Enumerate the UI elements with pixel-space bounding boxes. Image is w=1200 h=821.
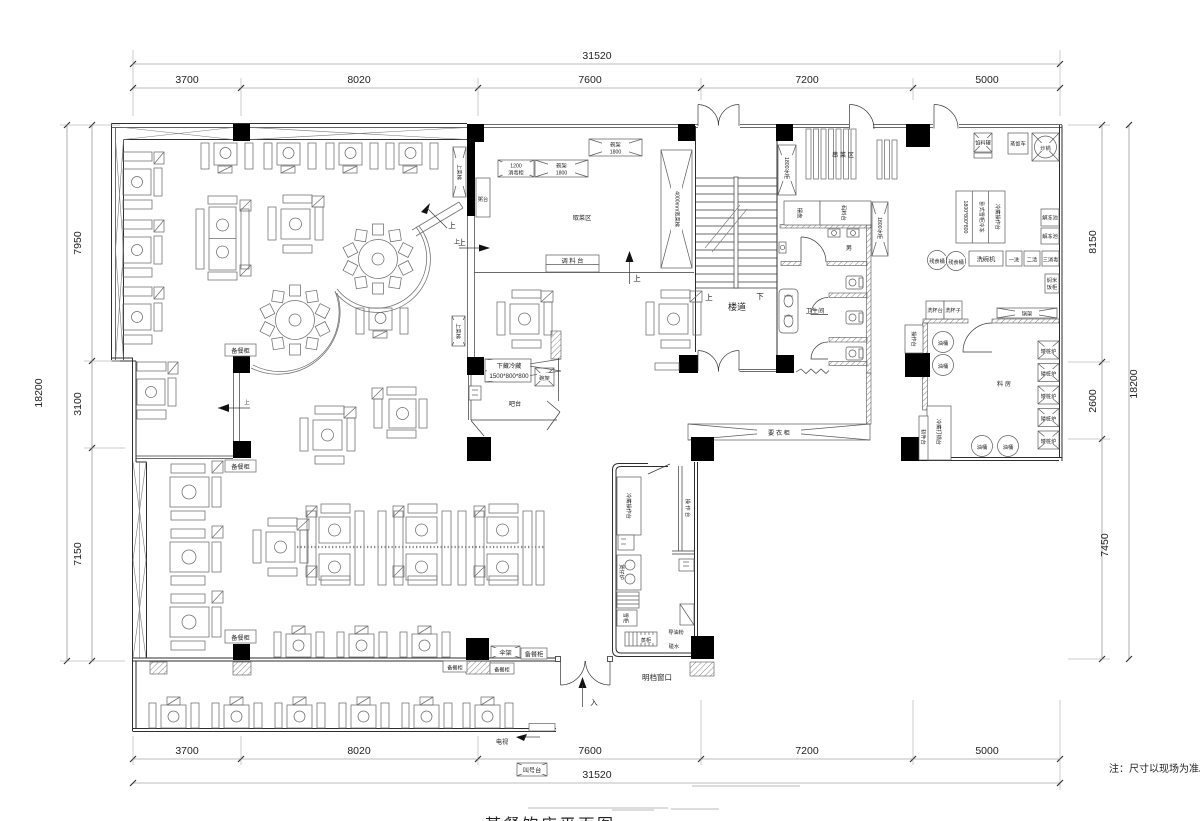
svg-text:油桶: 油桶 bbox=[938, 362, 948, 370]
svg-text:矮桩炉: 矮桩炉 bbox=[1041, 437, 1057, 445]
svg-text:碗架: 碗架 bbox=[556, 162, 566, 170]
svg-text:备餐柜: 备餐柜 bbox=[231, 347, 250, 355]
svg-text:7200: 7200 bbox=[795, 745, 819, 757]
svg-text:洗杯子: 洗杯子 bbox=[945, 306, 961, 314]
svg-text:某餐饮店平面图: 某餐饮店平面图 bbox=[485, 816, 613, 821]
svg-text:碗架: 碗架 bbox=[610, 141, 620, 149]
svg-text:残食桶: 残食桶 bbox=[929, 257, 945, 265]
svg-text:8020: 8020 bbox=[347, 745, 371, 757]
svg-text:上: 上 bbox=[244, 398, 249, 406]
svg-text:一洗: 一洗 bbox=[1009, 256, 1020, 264]
svg-text:备餐柜: 备餐柜 bbox=[494, 666, 510, 674]
svg-text:焖米: 焖米 bbox=[1047, 276, 1058, 284]
svg-text:2600: 2600 bbox=[1087, 389, 1099, 413]
svg-text:上菜梯: 上菜梯 bbox=[455, 323, 463, 339]
svg-text:1200: 1200 bbox=[510, 164, 522, 170]
svg-text:洗杯台: 洗杯台 bbox=[927, 306, 943, 314]
svg-text:8150: 8150 bbox=[1087, 230, 1099, 254]
svg-text:电视: 电视 bbox=[496, 738, 508, 746]
svg-text:31520: 31520 bbox=[582, 769, 611, 781]
svg-text:残食桶: 残食桶 bbox=[948, 258, 964, 266]
svg-text:取菜区: 取菜区 bbox=[573, 214, 592, 222]
svg-text:斩件台: 斩件台 bbox=[920, 429, 928, 445]
svg-text:7150: 7150 bbox=[72, 542, 84, 566]
svg-text:煲仔炉: 煲仔炉 bbox=[618, 564, 626, 580]
svg-text:7600: 7600 bbox=[578, 74, 602, 86]
svg-text:操 作 台: 操 作 台 bbox=[684, 499, 692, 517]
svg-text:炒锅: 炒锅 bbox=[1040, 144, 1050, 152]
svg-text:下藏冷藏: 下藏冷藏 bbox=[497, 362, 522, 370]
svg-text:雪柜: 雪柜 bbox=[622, 613, 630, 623]
svg-text:饭柜: 饭柜 bbox=[1047, 283, 1057, 291]
svg-text:三消毒: 三消毒 bbox=[1043, 256, 1059, 264]
svg-text:男: 男 bbox=[846, 245, 852, 252]
svg-text:消毒柜: 消毒柜 bbox=[508, 169, 524, 177]
svg-text:18200: 18200 bbox=[33, 378, 45, 407]
svg-text:串 菜 区: 串 菜 区 bbox=[832, 151, 854, 159]
svg-text:7600: 7600 bbox=[578, 745, 602, 757]
svg-text:导油粉: 导油粉 bbox=[668, 628, 684, 636]
svg-text:锅架: 锅架 bbox=[1022, 310, 1032, 318]
svg-text:料 房: 料 房 bbox=[997, 380, 1011, 388]
svg-text:调 料 台: 调 料 台 bbox=[561, 257, 583, 265]
svg-text:备餐柜: 备餐柜 bbox=[231, 463, 250, 471]
svg-text:上菜梯: 上菜梯 bbox=[456, 164, 464, 180]
svg-text:1800冰柜: 1800冰柜 bbox=[876, 217, 884, 239]
svg-text:1800*800*800: 1800*800*800 bbox=[962, 201, 968, 234]
svg-text:叫号台: 叫号台 bbox=[523, 767, 542, 775]
svg-text:油桶: 油桶 bbox=[977, 443, 987, 451]
svg-text:冷藏打锅台: 冷藏打锅台 bbox=[935, 419, 943, 445]
svg-text:洗碗机: 洗碗机 bbox=[977, 256, 996, 264]
svg-text:31520: 31520 bbox=[582, 50, 611, 62]
svg-text:碰水: 碰水 bbox=[669, 642, 680, 650]
svg-text:1500*800*800: 1500*800*800 bbox=[489, 373, 529, 380]
svg-text:上: 上 bbox=[705, 293, 713, 302]
svg-text:伞架: 伞架 bbox=[499, 649, 511, 657]
svg-text:注：尺寸以现场为准。: 注：尺寸以现场为准。 bbox=[1109, 762, 1200, 775]
svg-text:18200: 18200 bbox=[1128, 369, 1140, 398]
svg-text:矮桩炉: 矮桩炉 bbox=[1041, 392, 1057, 400]
svg-text:1800: 1800 bbox=[610, 150, 622, 156]
svg-text:7450: 7450 bbox=[1099, 533, 1111, 557]
svg-text:5000: 5000 bbox=[975, 745, 999, 757]
svg-text:3700: 3700 bbox=[175, 74, 199, 86]
svg-text:矮桩炉: 矮桩炉 bbox=[1041, 370, 1057, 378]
svg-text:要 衣 柜: 要 衣 柜 bbox=[768, 429, 790, 437]
svg-text:冷藏操作台: 冷藏操作台 bbox=[994, 204, 1002, 230]
svg-text:楼道: 楼道 bbox=[728, 301, 746, 312]
svg-text:1800冰柜: 1800冰柜 bbox=[783, 157, 791, 179]
svg-text:卫生间: 卫生间 bbox=[806, 307, 825, 315]
svg-text:7950: 7950 bbox=[72, 231, 84, 255]
svg-text:解冻池: 解冻池 bbox=[1042, 214, 1058, 222]
svg-text:二清: 二清 bbox=[1027, 256, 1037, 264]
svg-text:吧台: 吧台 bbox=[509, 400, 521, 408]
svg-text:冷藏操作台: 冷藏操作台 bbox=[625, 493, 633, 519]
svg-text:蒸柜: 蒸柜 bbox=[641, 636, 651, 644]
svg-text:上: 上 bbox=[633, 274, 641, 283]
svg-text:上: 上 bbox=[448, 221, 456, 230]
svg-text:备餐柜: 备餐柜 bbox=[231, 634, 250, 642]
svg-text:5000: 5000 bbox=[975, 74, 999, 86]
svg-text:入: 入 bbox=[590, 698, 598, 707]
svg-text:油桶: 油桶 bbox=[938, 339, 948, 347]
svg-text:4000mm宽菜梯: 4000mm宽菜梯 bbox=[674, 191, 682, 227]
svg-text:矮桩炉: 矮桩炉 bbox=[1041, 347, 1057, 355]
svg-text:3700: 3700 bbox=[175, 745, 199, 757]
svg-text:下: 下 bbox=[756, 292, 764, 301]
svg-text:解冻池: 解冻池 bbox=[1042, 232, 1058, 240]
svg-text:备餐柜: 备餐柜 bbox=[525, 651, 544, 659]
svg-text:1800: 1800 bbox=[556, 171, 568, 177]
svg-text:油桶: 油桶 bbox=[1003, 443, 1013, 451]
svg-text:操作台: 操作台 bbox=[910, 331, 918, 347]
svg-text:卧式雪柜冷冻: 卧式雪柜冷冻 bbox=[978, 201, 986, 232]
svg-text:碗架: 碗架 bbox=[539, 374, 549, 382]
svg-text:蒸饭车: 蒸饭车 bbox=[1010, 140, 1026, 148]
svg-text:8020: 8020 bbox=[347, 74, 371, 86]
svg-text:摆盘: 摆盘 bbox=[796, 208, 804, 218]
svg-text:馅料罐: 馅料罐 bbox=[975, 139, 991, 147]
svg-text:7200: 7200 bbox=[795, 74, 819, 86]
svg-text:粥台: 粥台 bbox=[478, 195, 488, 203]
svg-text:明档窗口: 明档窗口 bbox=[642, 672, 672, 682]
svg-text:上: 上 bbox=[454, 238, 460, 246]
svg-text:备餐柜: 备餐柜 bbox=[447, 664, 463, 672]
svg-text:矮桩炉: 矮桩炉 bbox=[1041, 415, 1057, 423]
svg-text:码料台: 码料台 bbox=[840, 205, 848, 221]
svg-text:3100: 3100 bbox=[72, 392, 84, 416]
